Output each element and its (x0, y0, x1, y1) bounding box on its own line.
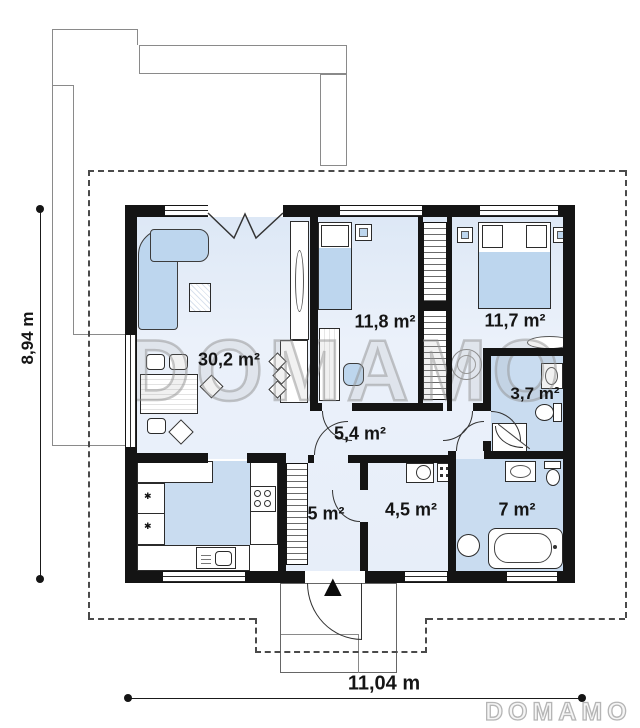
wall-wardrobe-separator (418, 302, 452, 310)
room-label-living: 30,2 m² (198, 350, 260, 371)
stove-burner (264, 500, 271, 507)
bathroom-large-sink (505, 461, 536, 482)
terrace-left-outer-line (52, 29, 53, 445)
height-dimension-label: 8,94 m (18, 312, 38, 365)
wall-living-bedroom1 (310, 217, 318, 411)
terrace-outline-step (137, 29, 138, 45)
corner-sofa-horizontal (150, 229, 209, 262)
meter-dot (440, 474, 443, 477)
bathtub-inner (494, 533, 552, 563)
window-bathroom-large (507, 571, 557, 583)
wall-wardrobe-right (447, 217, 452, 411)
height-dimension-dot-bottom (36, 575, 44, 583)
kitchen-floor-blue-upper (213, 461, 250, 483)
room-label-bedroom1: 11,8 m² (354, 312, 415, 333)
bed-single-pillow (321, 225, 349, 247)
room-label-bathroom-small: 3,7 m² (510, 384, 559, 404)
terrace-left-inner-line (73, 85, 74, 334)
terrace-connector-upper (73, 334, 125, 335)
window-living-top (165, 205, 210, 217)
width-dimension-label: 11,04 m (348, 673, 420, 696)
wall-hall-stub-left (318, 403, 322, 411)
watermark-text: DOMAMO (128, 322, 565, 421)
roof-dashed-top (88, 170, 625, 172)
wall-bathroom-large-left (448, 451, 456, 571)
wall-vestibule-utility-lower (360, 522, 368, 571)
room-label-bedroom2: 11,7 m² (484, 311, 545, 332)
wall-bathroom-small-left-upper (483, 348, 491, 411)
wall-kitchen-top-right (247, 453, 278, 463)
height-dimension-line (40, 209, 41, 579)
wall-utility-top (348, 455, 455, 463)
wall-kitchen-right (278, 453, 286, 571)
freezer-star-icon: ✱ (144, 491, 152, 502)
wall-bathroom-small-left-lower (483, 441, 491, 451)
bed-double-blanket (479, 252, 550, 308)
freezer-star-icon: ✱ (144, 521, 152, 532)
terrace-left-top-line (52, 85, 73, 86)
window-kitchen (163, 571, 245, 583)
kitchen-floor-blue (165, 483, 250, 545)
boiler-dial (416, 465, 431, 480)
wall-wardrobe-left (418, 217, 423, 411)
window-living-left (125, 335, 137, 447)
wall-bedroom2-bottom (483, 348, 563, 356)
washing-machine (457, 534, 480, 557)
entrance-arrow-icon: ▲ (318, 572, 348, 602)
bathtub-drain (553, 545, 557, 549)
stove-burner (264, 490, 271, 497)
window-vestibule (405, 571, 447, 583)
wall-vestibule-top-stub (308, 455, 314, 463)
outer-wall-right (563, 205, 575, 583)
window-bedroom1 (340, 205, 422, 217)
wall-bathrooms-divider-right (484, 451, 563, 459)
nightstand-top (359, 228, 368, 237)
terrace-band-top (139, 45, 347, 74)
bedroom1-wardrobe (423, 222, 447, 302)
wall-hall-middle (352, 403, 443, 411)
vestibule-wardrobe (286, 463, 308, 565)
roof-dashed-right (625, 170, 627, 618)
entrance-door-leaf (361, 583, 362, 640)
wall-kitchen-top-left (125, 453, 208, 463)
width-dimension-dot-left (124, 694, 132, 702)
nightstand-top (461, 231, 469, 239)
utility-boiler (406, 463, 434, 483)
kitchen-counter-left-divider (138, 513, 164, 514)
bathtub (488, 528, 563, 569)
room-label-vestibule: 5 m² (307, 504, 344, 525)
terrace-band-right (320, 74, 347, 166)
brand-logo: DOMAMO (485, 698, 632, 727)
sink-basin (510, 465, 531, 478)
tv-cabinet-handle (295, 250, 304, 312)
meter-dot (440, 467, 443, 470)
roof-dashed-bottom-right (427, 618, 625, 620)
kitchen-stove (250, 486, 276, 512)
sink-drainer-lines (201, 552, 211, 564)
roof-dashed-left (88, 170, 90, 618)
bed-double-pillow-left (482, 225, 503, 248)
kitchen-counter-top (137, 461, 213, 483)
terrace-outline-top (52, 29, 137, 30)
nightstand (355, 224, 372, 241)
floor-plan-page: 8,94 m 11,04 m ✱ ✱ (0, 0, 640, 728)
sink-bowl (215, 551, 232, 566)
folding-door-zigzag (206, 211, 285, 241)
room-label-utility: 4,5 m² (385, 500, 437, 521)
room-label-bathroom-large: 7 m² (498, 500, 535, 521)
bed-double-pillow-right (526, 225, 547, 248)
nightstand (457, 227, 473, 243)
stove-burner (254, 500, 261, 507)
living-rug (189, 283, 211, 312)
bed-single-blanket (319, 248, 351, 309)
room-label-hall: 5,4 m² (334, 424, 386, 445)
height-dimension-dot-top (36, 205, 44, 213)
stove-burner (254, 490, 261, 497)
bathroom-large-toilet-bowl (546, 469, 560, 486)
wall-vestibule-utility-upper (360, 463, 368, 490)
window-bedroom2 (480, 205, 558, 217)
kitchen-sink-unit (196, 547, 236, 569)
roof-dashed-bottom-left (88, 618, 255, 620)
wall-hall-right (473, 403, 483, 411)
bathroom-large-toilet-tank (544, 461, 561, 469)
